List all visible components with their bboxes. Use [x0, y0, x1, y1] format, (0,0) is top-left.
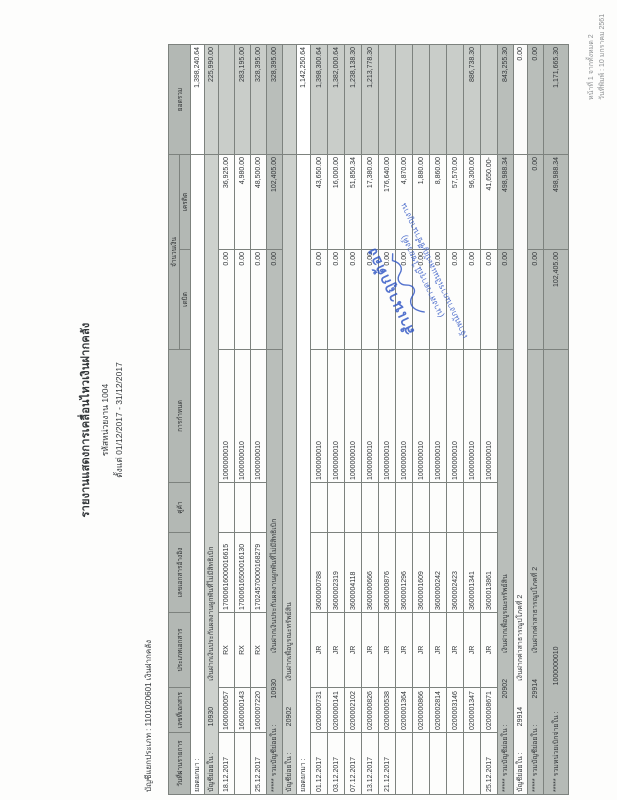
cell-balance: 0.00: [528, 45, 544, 155]
cell-balance: [219, 45, 235, 155]
cell-partner: [481, 483, 498, 533]
cell-doc-no: 0200001364: [396, 688, 413, 733]
cell-doc-type: JR: [413, 613, 430, 688]
cell-credit: 96,300.00: [464, 155, 481, 250]
cell-partner: [447, 483, 464, 533]
cell-assignment: 1000000010: [396, 350, 413, 483]
cell-credit: 0.00: [528, 155, 544, 250]
cell-reference: 17000616500016130: [235, 533, 251, 613]
cell-doc-type: JR: [464, 613, 481, 688]
row-label: ***** รวมบัญชีย่อยใน :20902เงินฝากเพื่อบ…: [498, 350, 514, 795]
cell-doc-no: 0200000141: [328, 688, 345, 733]
cell-partner: [362, 483, 379, 533]
col-header-reference: เลขเอกสารอ้างอิง: [169, 533, 191, 613]
cell-assignment: 1000000010: [464, 350, 481, 483]
cell-assignment: 1000000010: [311, 350, 328, 483]
cell-doc-no: 0200003146: [447, 688, 464, 733]
cell-balance: 1,398,300.64: [311, 45, 328, 155]
print-date: วันที่พิมพ์ : 10 มกราคม 2561: [597, 14, 608, 100]
cell-reference: 3600002423: [447, 533, 464, 613]
table-row-data2: 0200001364JR360000129610000000100.004,87…: [396, 45, 413, 795]
cell-doc-type: JR: [430, 613, 447, 688]
cell-date: 18.12.2017: [219, 733, 235, 795]
col-header-date: วันที่ผ่านรายการ: [169, 733, 191, 795]
cell-partner: [464, 483, 481, 533]
cell-debit: 0.00: [267, 250, 283, 350]
cell-debit: 0.00: [528, 250, 544, 350]
cell-balance: [430, 45, 447, 155]
cell-reference: 3600000666: [362, 533, 379, 613]
cell-reference: 3600002319: [328, 533, 345, 613]
cell-debit: 0.00: [328, 250, 345, 350]
table-row-data2: 21.12.20170200000538JR360000087610000000…: [379, 45, 396, 795]
table-row-total: ***** รวมบัญชีย่อยใน :20902เงินฝากเพื่อบ…: [498, 45, 514, 795]
cell-partner: [413, 483, 430, 533]
cell-doc-type: JR: [345, 613, 362, 688]
table-row-data2: 13.12.20170200000826JR360000066610000000…: [362, 45, 379, 795]
cell-assignment: 1000000010: [328, 350, 345, 483]
scanned-report-page: รายงานแสดงการเคลื่อนไหวเงินฝากคลัง รหัสห…: [0, 0, 617, 800]
cell-partner: [219, 483, 235, 533]
cell-doc-no: 0200001347: [464, 688, 481, 733]
cell-partner: [345, 483, 362, 533]
cell-balance: 843,255.30: [498, 45, 514, 155]
cell-doc-type: JR: [481, 613, 498, 688]
cell-assignment: 1000000010: [430, 350, 447, 483]
cell-debit: 0.00: [311, 250, 328, 350]
cell-balance: 1,398,240.64: [191, 45, 205, 155]
cell-assignment: 1000000010: [447, 350, 464, 483]
row-label: บัญชีย่อยใน :20902เงินฝากเพื่อบูรณะทรัพย…: [283, 155, 297, 795]
cell-balance: 225,990.00: [205, 45, 219, 155]
cell-balance: 1,213,778.30: [362, 45, 379, 155]
col-header-total: ยอดรวม: [169, 45, 191, 155]
cell-doc-type: RX: [235, 613, 251, 688]
cell-assignment: 1000000010: [235, 350, 251, 483]
cell-date: 01.12.2017: [311, 733, 328, 795]
table-row-total: ***** รวมบัญชีย่อยใน :29914เงินฝากค่าสาธ…: [528, 45, 544, 795]
cell-reference: 3600000242: [430, 533, 447, 613]
table-row-carry: ยอดยกมา :1,398,240.64: [191, 45, 205, 795]
cell-doc-no: 0200008671: [481, 688, 498, 733]
cell-debit: 0.00: [219, 250, 235, 350]
cell-reference: 3600001341: [464, 533, 481, 613]
cell-doc-no: 1600000057: [219, 688, 235, 733]
col-header-assignment: การกำหนด: [169, 350, 191, 483]
cell-balance: [379, 45, 396, 155]
table-row-total: ***** รวมบัญชีย่อยใน :10930เงินฝากเงินปร…: [267, 45, 283, 795]
cell-credit: 43,650.00: [311, 155, 328, 250]
cell-debit: 0.00: [235, 250, 251, 350]
cell-doc-no: 0200000866: [413, 688, 430, 733]
table-row-data2: 0200001347JR360000134110000000100.0096,3…: [464, 45, 481, 795]
cell-date: 21.12.2017: [379, 733, 396, 795]
cell-balance: 328,395.00: [267, 45, 283, 155]
cell-assignment: 1000000010: [362, 350, 379, 483]
cell-date: [464, 733, 481, 795]
cell-reference: 3600001609: [413, 533, 430, 613]
row-label: ยอดยกมา :: [297, 155, 311, 795]
cell-doc-type: JR: [362, 613, 379, 688]
cell-date: [396, 733, 413, 795]
cell-assignment: 1000000010: [413, 350, 430, 483]
cell-balance: [396, 45, 413, 155]
cell-balance: 1,382,000.64: [328, 45, 345, 155]
cell-date: 25.12.2017: [251, 733, 267, 795]
row-label: ***** รวมหน่วยเบิกจ่ายใน :1000000010: [544, 350, 569, 795]
col-header-partner: คู่ค้า: [169, 483, 191, 533]
page-info: หน้าที่ 1 จากทั้งหมด 2 วันที่พิมพ์ : 10 …: [586, 14, 608, 100]
cell-balance: 328,395.00: [251, 45, 267, 155]
cell-credit: 48,500.00: [251, 155, 267, 250]
cell-balance: [481, 45, 498, 155]
table-row-data1: 18.12.20171600000057RX170006160000166151…: [219, 45, 235, 795]
report-org-code: รหัสหน่วยงาน 1004: [98, 40, 112, 800]
cell-date: [235, 733, 251, 795]
col-header-amount-group: จำนวนเงิน: [169, 155, 180, 350]
cell-balance: 1,142,250.64: [297, 45, 311, 155]
page-number: หน้าที่ 1 จากทั้งหมด 2: [586, 14, 597, 100]
cell-date: 03.12.2017: [328, 733, 345, 795]
cell-reference: 17024570000168279: [251, 533, 267, 613]
report-title: รายงานแสดงการเคลื่อนไหวเงินฝากคลัง: [76, 40, 94, 800]
ledger-table: วันที่ผ่านรายการ เลขที่เอกสาร ประเภทเอกส…: [168, 44, 569, 795]
cell-doc-no: 0200002102: [345, 688, 362, 733]
cell-credit: 16,000.00: [328, 155, 345, 250]
cell-date: [430, 733, 447, 795]
cell-doc-type: JR: [328, 613, 345, 688]
cell-balance: 283,195.00: [235, 45, 251, 155]
report-period: ตั้งแต่ 01/12/2017 - 31/12/2017: [112, 40, 126, 800]
row-label: ***** รวมบัญชีย่อยใน :10930เงินฝากเงินปร…: [267, 350, 283, 795]
row-label: บัญชีย่อยใน :10930เงินฝากเงินประกันผลงาน…: [205, 155, 219, 795]
cell-partner: [379, 483, 396, 533]
cell-reference: 17000616000016615: [219, 533, 235, 613]
cell-doc-no: 0200000538: [379, 688, 396, 733]
table-row-grand: ***** รวมหน่วยเบิกจ่ายใน :1000000010102,…: [544, 45, 569, 795]
cell-reference: 3600013861: [481, 533, 498, 613]
cell-doc-type: JR: [447, 613, 464, 688]
col-header-debit: เดบิต: [180, 250, 191, 350]
col-header-credit: เครดิต: [180, 155, 191, 250]
cell-credit: 8,860.00: [430, 155, 447, 250]
table-row-data2: 03.12.20170200000141JR360000231910000000…: [328, 45, 345, 795]
cell-doc-no: 1600007220: [251, 688, 267, 733]
cell-date: [413, 733, 430, 795]
cell-credit: 498,988.34: [498, 155, 514, 250]
table-row-sectw: บัญชีย่อยใน :29914เงินฝากค่าสาธารณูปโภคท…: [514, 45, 528, 795]
cell-reference: 3600001296: [396, 533, 413, 613]
table-row-data2: 07.12.20170200002102JR360000411810000000…: [345, 45, 362, 795]
table-row-section: บัญชีย่อยใน :10930เงินฝากเงินประกันผลงาน…: [205, 45, 219, 795]
cell-assignment: 1000000010: [251, 350, 267, 483]
cell-balance: 1,238,138.30: [345, 45, 362, 155]
cell-partner: [251, 483, 267, 533]
cell-doc-no: 1600000143: [235, 688, 251, 733]
landscape-report: รายงานแสดงการเคลื่อนไหวเงินฝากคลัง รหัสห…: [0, 0, 617, 800]
cell-debit: 0.00: [345, 250, 362, 350]
cell-doc-no: 0200000826: [362, 688, 379, 733]
col-header-doc-no: เลขที่เอกสาร: [169, 688, 191, 733]
table-row-data1: 1600000143RX1700061650001613010000000100…: [235, 45, 251, 795]
cell-credit: 57,570.00: [447, 155, 464, 250]
cell-doc-no: 0200000731: [311, 688, 328, 733]
cell-debit: 0.00: [498, 250, 514, 350]
cell-balance: 0.00: [514, 45, 528, 155]
table-row-data1: 25.12.20171600007220RX170245700001682791…: [251, 45, 267, 795]
cell-assignment: 1000000010: [345, 350, 362, 483]
cell-date: [447, 733, 464, 795]
cell-date: 25.12.2017: [481, 733, 498, 795]
cell-date: 13.12.2017: [362, 733, 379, 795]
cell-debit: 0.00: [481, 250, 498, 350]
cell-debit: 0.00: [251, 250, 267, 350]
cell-credit: 498,988.34: [544, 155, 569, 250]
table-row-data2: 25.12.20170200008671JR360001386110000000…: [481, 45, 498, 795]
cell-balance: 886,738.30: [464, 45, 481, 155]
cell-balance: 1,171,665.30: [544, 45, 569, 155]
cell-partner: [396, 483, 413, 533]
row-label: ***** รวมบัญชีย่อยใน :29914เงินฝากค่าสาธ…: [528, 350, 544, 795]
cell-partner: [311, 483, 328, 533]
row-label: บัญชีย่อยใน :29914เงินฝากค่าสาธารณูปโภคท…: [514, 155, 528, 795]
cell-assignment: 1000000010: [219, 350, 235, 483]
cell-doc-no: 0200002814: [430, 688, 447, 733]
table-row-data2: 0200000866JR360000160910000000100.001,88…: [413, 45, 430, 795]
cell-partner: [430, 483, 447, 533]
row-label: ยอดยกมา :: [191, 155, 205, 795]
cell-doc-type: JR: [396, 613, 413, 688]
cell-doc-type: JR: [379, 613, 396, 688]
cell-assignment: 1000000010: [379, 350, 396, 483]
table-row-section: บัญชีย่อยใน :20902เงินฝากเพื่อบูรณะทรัพย…: [283, 45, 297, 795]
cell-credit: 36,925.00: [219, 155, 235, 250]
cell-balance: [413, 45, 430, 155]
cell-partner: [328, 483, 345, 533]
table-row-carry: ยอดยกมา :1,142,250.64: [297, 45, 311, 795]
cell-assignment: 1000000010: [481, 350, 498, 483]
table-row-data2: 0200003146JR360000242310000000100.0057,5…: [447, 45, 464, 795]
cell-balance: [447, 45, 464, 155]
cell-doc-type: RX: [251, 613, 267, 688]
cell-reference: 3600000876: [379, 533, 396, 613]
cell-doc-type: RX: [219, 613, 235, 688]
cell-debit: 102,405.00: [544, 250, 569, 350]
col-header-doc-type: ประเภทเอกสาร: [169, 613, 191, 688]
cell-reference: 3600000788: [311, 533, 328, 613]
cell-partner: [235, 483, 251, 533]
cell-credit: 4,980.00: [235, 155, 251, 250]
cell-credit: 102,405.00: [267, 155, 283, 250]
gl-account-label: บัญชีแยกประเภท : 1101020601 เงินฝากคลัง: [142, 640, 155, 792]
table-row-data2: 0200002814JR360000024210000000100.008,86…: [430, 45, 447, 795]
cell-date: 07.12.2017: [345, 733, 362, 795]
table-row-data2: 01.12.20170200000731JR360000078810000000…: [311, 45, 328, 795]
cell-credit: 41,650.00-: [481, 155, 498, 250]
cell-reference: 3600004118: [345, 533, 362, 613]
cell-balance: [283, 45, 297, 155]
cell-doc-type: JR: [311, 613, 328, 688]
